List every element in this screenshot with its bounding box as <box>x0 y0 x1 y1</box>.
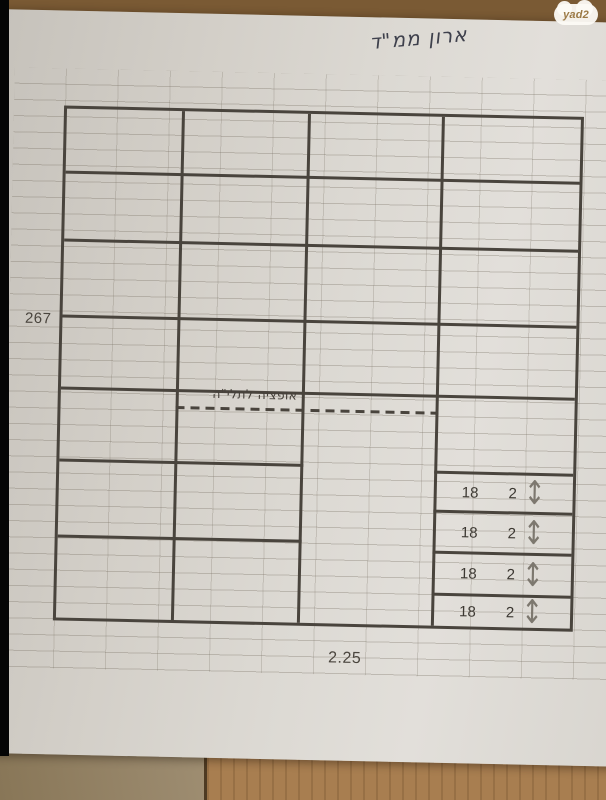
drawer-depth-label: 18 <box>461 524 478 541</box>
divider-line-1 <box>171 111 185 620</box>
drawer-row-1: 18 2 ↕ <box>433 474 573 513</box>
hanging-rod-dashed-line <box>176 406 439 415</box>
drawer-row-4: 18 2 ↕ <box>431 596 571 629</box>
drawer-row-2: 18 2 ↕ <box>432 513 572 554</box>
drawer-depth-label: 18 <box>460 565 477 582</box>
closet-diagram: אופציה לתלי"ה 18 2 ↕ 18 2 ↕ 18 2 ↕ 18 2 … <box>53 106 584 632</box>
screen-edge-strip <box>0 0 9 756</box>
shelf-line-3 <box>62 315 576 329</box>
shelf-line-1 <box>66 171 580 185</box>
drawer-depth-label: 18 <box>462 484 479 501</box>
drawer-depth-label: 18 <box>459 603 476 620</box>
yad2-watermark-label: yad2 <box>563 9 589 21</box>
drawer-qty-label: 2 <box>506 604 515 621</box>
paper-sheet: ארון ממ"ד אופציה לתלי"ה 18 <box>0 9 606 767</box>
width-dimension-label: 2.25 <box>328 649 362 668</box>
divider-line-2 <box>297 114 311 623</box>
handwritten-title: ארון ממ"ד <box>327 22 469 58</box>
drawer-row-3: 18 2 ↕ <box>432 554 572 596</box>
yad2-watermark: yad2 <box>554 4 598 25</box>
photo-of-sketch: ארון ממ"ד אופציה לתלי"ה 18 <box>0 0 606 800</box>
left-shelf-line-2 <box>58 534 302 542</box>
drawer-qty-label: 2 <box>506 566 515 583</box>
drawer-qty-label: 2 <box>507 525 516 542</box>
left-shelf-line-1 <box>59 459 303 467</box>
hanging-option-label: אופציה לתלי"ה <box>165 385 345 404</box>
shelf-line-2 <box>64 239 578 253</box>
height-dimension-label: 267 <box>7 309 51 327</box>
drawer-qty-label: 2 <box>508 485 517 502</box>
